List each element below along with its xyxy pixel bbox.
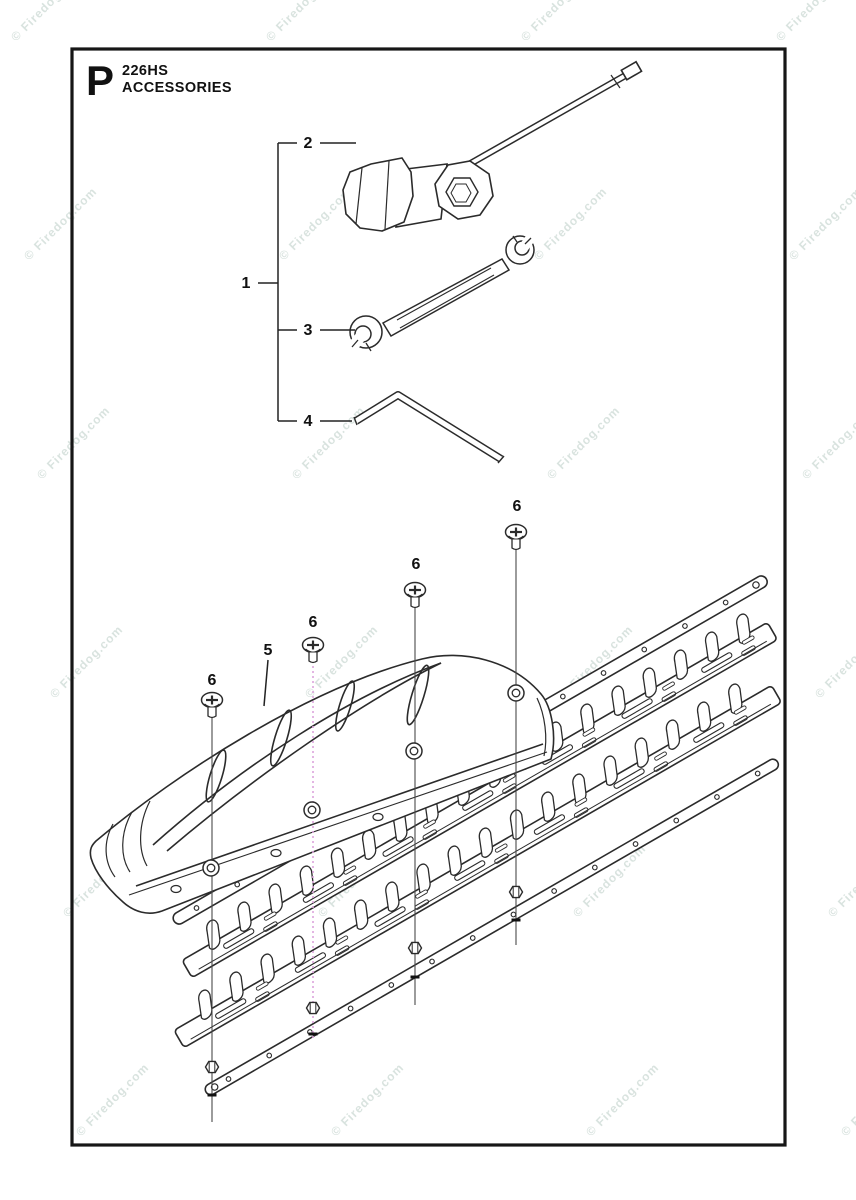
cover-washer bbox=[406, 743, 422, 759]
callout-number: 4 bbox=[304, 413, 313, 430]
part-allen-key bbox=[354, 395, 504, 463]
cover-washer bbox=[304, 802, 320, 818]
callout-number: 3 bbox=[304, 322, 313, 339]
pan-head-screw bbox=[303, 638, 324, 663]
title-block: P 226HS ACCESSORIES bbox=[86, 57, 232, 104]
hex-nut bbox=[510, 886, 523, 897]
cover-tab bbox=[271, 850, 281, 857]
hex-nut bbox=[206, 1061, 219, 1072]
callout-number: 6 bbox=[513, 498, 522, 515]
cover-washer bbox=[203, 860, 219, 876]
pan-head-screw bbox=[506, 525, 527, 550]
callout-number: 5 bbox=[264, 642, 273, 659]
cover-washer bbox=[508, 685, 524, 701]
part-socket-wrench bbox=[343, 62, 642, 231]
wrench-bar-tip bbox=[621, 62, 641, 80]
scanned-parts-page: © Firedog.com© Firedog.com© Firedog.com©… bbox=[0, 0, 856, 1200]
parts-diagram: P 226HS ACCESSORIES bbox=[0, 0, 856, 1200]
cover-tab bbox=[171, 886, 181, 893]
hex-nut bbox=[307, 1002, 320, 1013]
callout-line bbox=[264, 660, 268, 706]
hex-nut bbox=[409, 942, 422, 953]
pan-head-screw bbox=[202, 693, 223, 718]
wrench-left-collar bbox=[343, 158, 413, 231]
cover-tab bbox=[373, 814, 383, 821]
callout-number: 6 bbox=[208, 672, 217, 689]
callout-number: 2 bbox=[304, 135, 313, 152]
part-open-end-wrench bbox=[343, 228, 540, 357]
wrench3-shaft bbox=[383, 259, 509, 336]
model-number: 226HS bbox=[122, 63, 168, 79]
section-letter: P bbox=[86, 57, 114, 104]
callout-number: 1 bbox=[242, 275, 251, 292]
page-title: ACCESSORIES bbox=[122, 80, 232, 96]
pan-head-screw bbox=[405, 583, 426, 608]
callout-number: 6 bbox=[309, 614, 318, 631]
callout-number: 6 bbox=[412, 556, 421, 573]
